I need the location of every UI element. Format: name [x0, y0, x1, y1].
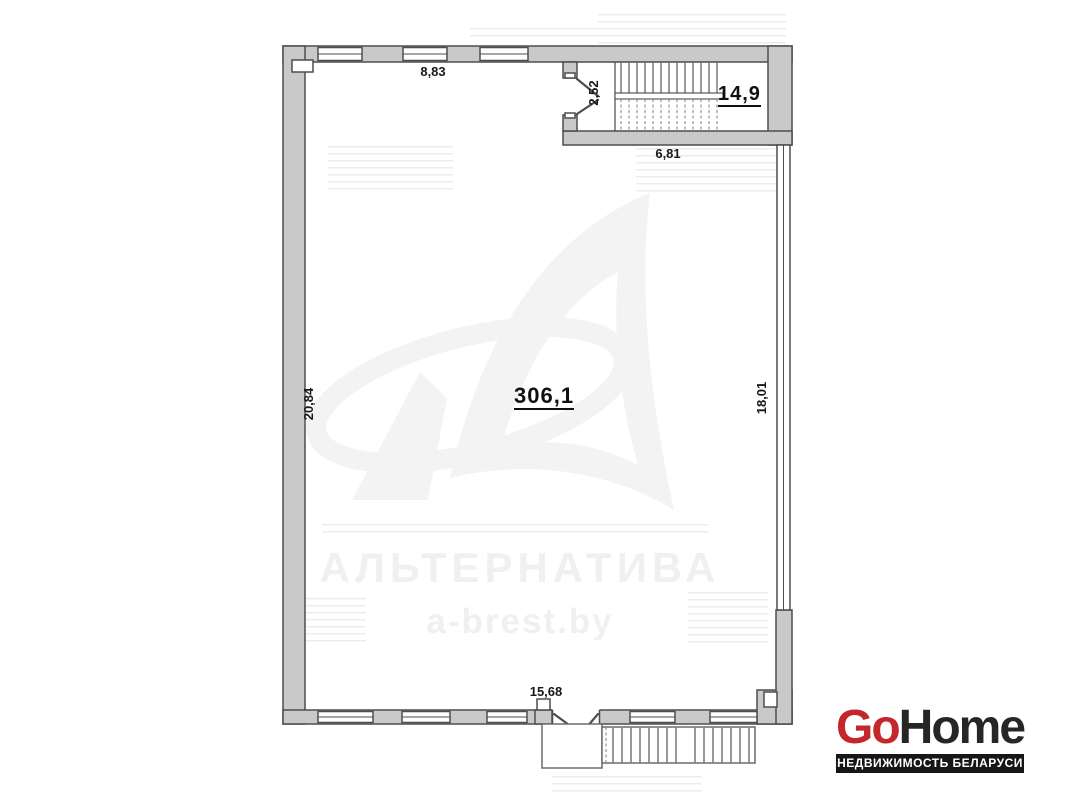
dim-stair-door-label: 2,52 — [586, 63, 602, 123]
gohome-logo: GoHome НЕДВИЖИМОСТЬ БЕЛАРУСИ — [836, 703, 1024, 773]
dim-bottom-door-label: 15,68 — [516, 684, 576, 700]
labels-layer: 8,83 2,52 6,81 20,84 18,01 15,68 14,9 30… — [0, 0, 1068, 800]
dim-right-wall-label: 18,01 — [754, 368, 770, 428]
gohome-logo-text: GoHome — [836, 703, 1024, 753]
logo-home-text: Home — [899, 701, 1024, 754]
logo-go-text: Go — [836, 701, 899, 754]
dim-under-stairs-label: 6,81 — [638, 146, 698, 162]
gohome-tagline: НЕДВИЖИМОСТЬ БЕЛАРУСИ — [836, 754, 1024, 773]
stair-room-area-label: 14,9 — [718, 84, 761, 107]
main-room-area-label: 306,1 — [514, 384, 574, 410]
floor-plan-page: АЛЬТЕРНАТИВА a-brest.by — [0, 0, 1068, 800]
dim-top-wall-label: 8,83 — [403, 64, 463, 80]
dim-left-wall-label: 20,84 — [301, 374, 317, 434]
